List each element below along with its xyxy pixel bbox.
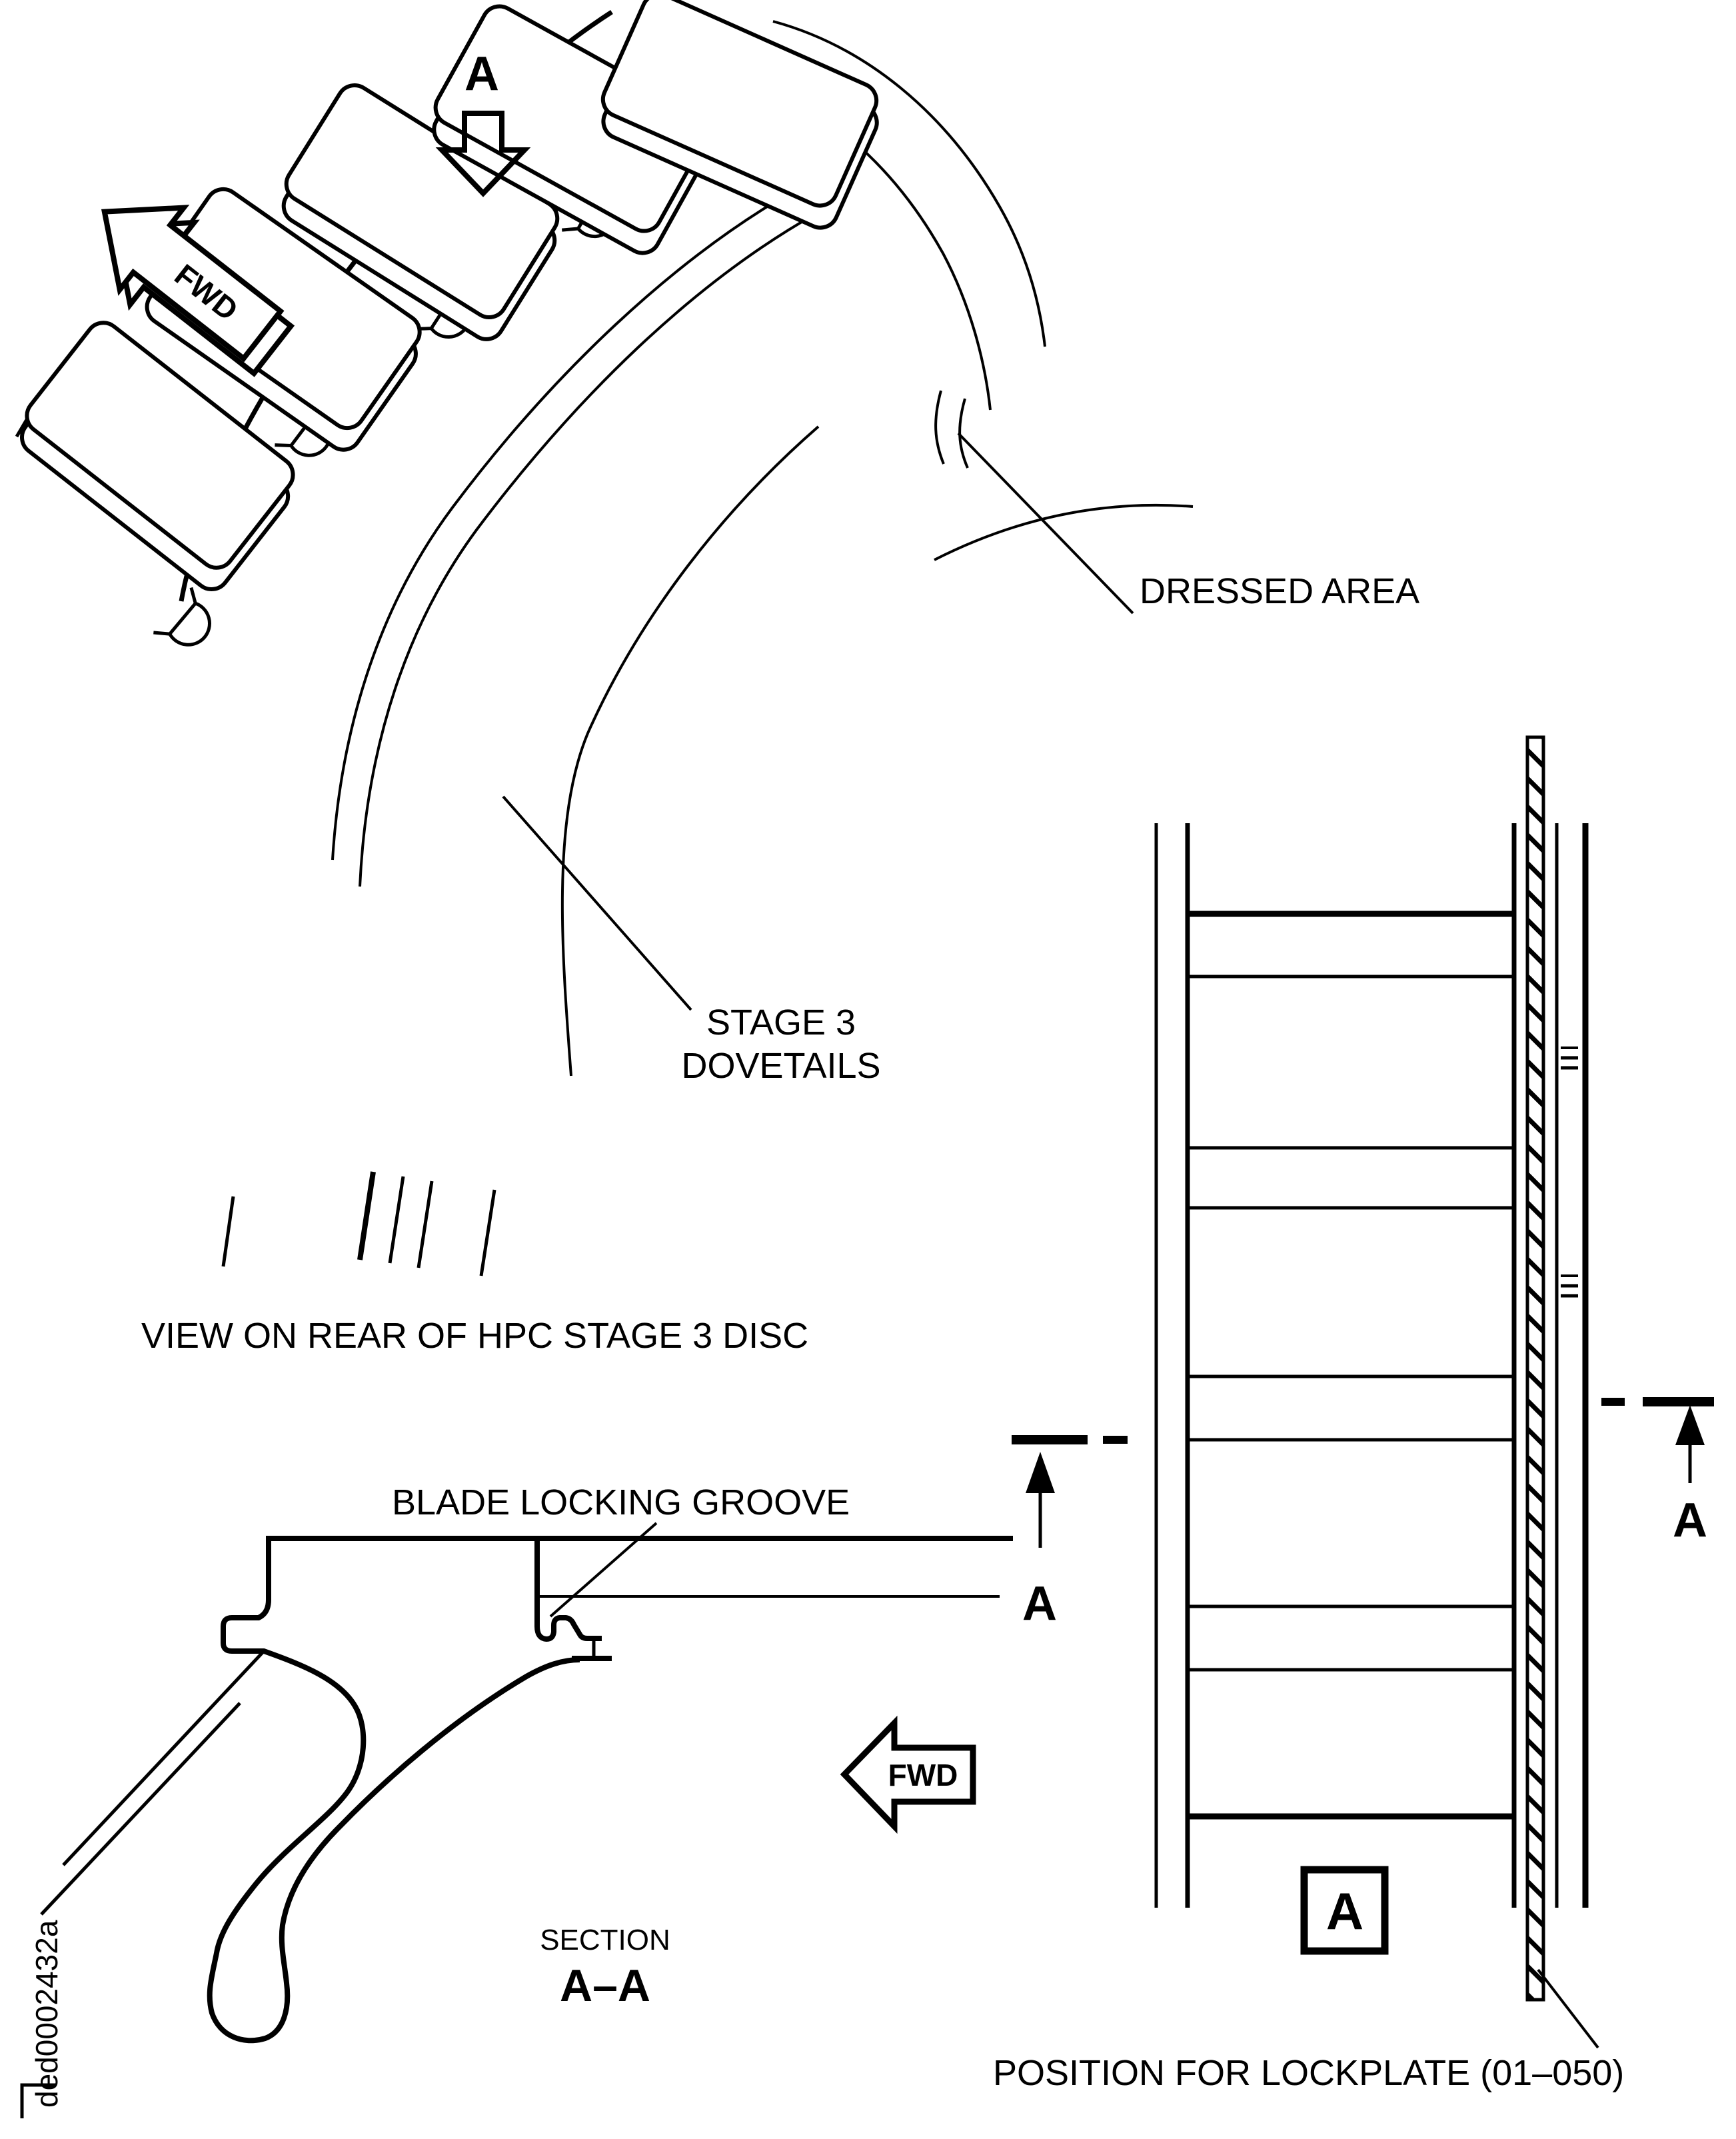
technical-illustration-page: DRESSED AREA STAGE 3 DOVETAILS VIEW ON R… <box>0 0 1736 2139</box>
dressed-area-label: DRESSED AREA <box>1140 571 1419 611</box>
cut-letter-right: A <box>1673 1494 1707 1547</box>
cut-letter-left: A <box>1022 1577 1057 1630</box>
position-for-lockplate-label: POSITION FOR LOCKPLATE (01–050) <box>993 2053 1624 2093</box>
lockplate-strip-hatched <box>1527 737 1543 2000</box>
doc-id-label: ded0002432a <box>29 1920 64 2108</box>
hpc-stage3-disc-figure: DRESSED AREA STAGE 3 DOVETAILS VIEW ON R… <box>0 0 1736 2139</box>
stage3-dovetails-label-line1: STAGE 3 <box>706 1003 856 1043</box>
section-prefix-label: SECTION <box>540 1924 670 1956</box>
detail-identifier-letter: A <box>1326 1882 1363 1940</box>
view-arrow-letter: A <box>464 47 499 101</box>
blade-locking-groove-label: BLADE LOCKING GROOVE <box>392 1482 850 1522</box>
fwd-arrow-label: FWD <box>888 1758 958 1792</box>
stage3-dovetails-label-line2: DOVETAILS <box>681 1046 880 1086</box>
detail-identifier-box: A <box>1304 1870 1385 1951</box>
view-caption: VIEW ON REAR OF HPC STAGE 3 DISC <box>141 1316 808 1356</box>
section-title-label: A–A <box>560 1960 650 2011</box>
